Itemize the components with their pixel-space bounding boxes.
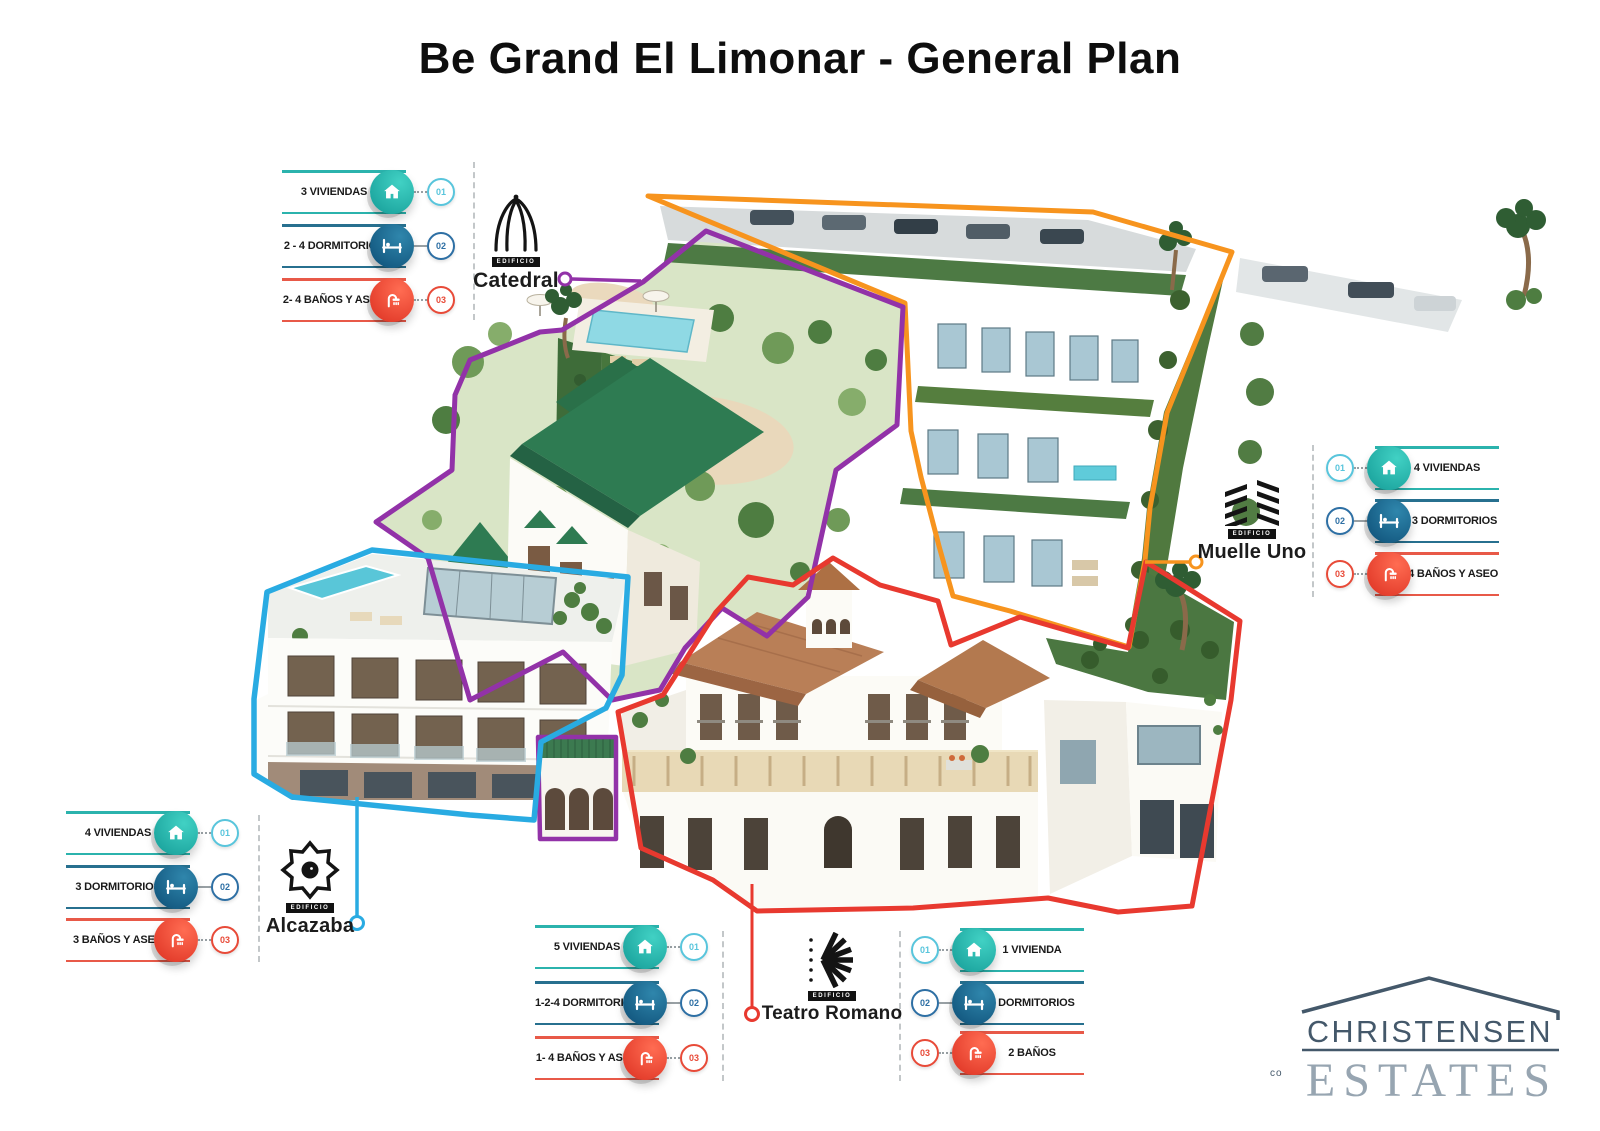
building-name: Catedral [473,269,559,293]
dotted-connector [414,191,427,193]
home-icon [1367,446,1411,490]
step-number: 01 [680,933,708,961]
brand-roof-icon [1302,978,1558,1020]
stat-row: 3 VIVIENDAS 01 [282,170,455,214]
stat-label: 4 VIVIENDAS [1414,462,1480,474]
step-number: 02 [211,873,239,901]
stat-label: 2 DORMITORIOS [989,997,1074,1009]
dotted-connector [667,946,680,948]
dotted-connector [1354,573,1367,575]
step-number: 03 [911,1039,939,1067]
building-name: Alcazaba [266,915,354,938]
slatted-bars-icon [1223,478,1281,526]
home-icon [370,170,414,214]
stat-row: 2 - 4 DORMITORIOS 02 [282,224,455,268]
stat-row: 2- 4 BAÑOS Y ASEO 03 [282,278,455,322]
bed-icon [370,224,414,268]
stat-row: 03 2 BAÑOS [911,1031,1084,1075]
shower-icon [370,278,414,322]
stat-row: 02 2 DORMITORIOS [911,981,1084,1025]
building-type-badge: EDIFICIO [1228,529,1277,539]
stat-row: 03 3- 4 BAÑOS Y ASEO [1326,552,1499,596]
brand-subname: ESTATES [1306,1054,1558,1107]
eight-pointed-star-icon [280,840,340,900]
step-number: 01 [427,178,455,206]
line-connector [667,1002,680,1004]
cathedral-arches-icon [489,192,543,254]
step-number: 03 [680,1044,708,1072]
brand-name: CHRISTENSEN [1307,1015,1553,1049]
dotted-connector [198,832,211,834]
stat-label: 5 VIVIENDAS [554,941,620,953]
dotted-connector [939,1052,952,1054]
stat-row: 5 VIVIENDAS 01 [535,925,708,969]
dotted-connector [667,1057,680,1059]
dotted-connector [414,299,427,301]
radial-fan-icon [807,932,857,988]
divider [1312,445,1314,597]
page-title: Be Grand El Limonar - General Plan [0,34,1600,84]
stat-label: 3 VIVIENDAS [301,186,367,198]
stat-label: 2 - 3 DORMITORIOS [1397,515,1497,527]
building-label-teatro-romano: EDIFICIO Teatro Romano [768,932,896,1025]
building-type-badge: EDIFICIO [286,903,335,913]
step-number: 01 [1326,454,1354,482]
bed-icon [154,865,198,909]
line-connector [414,245,427,247]
step-number: 03 [211,926,239,954]
stat-row: 3 DORMITORIOS 02 [66,865,239,909]
bed-icon [623,981,667,1025]
line-connector [198,886,211,888]
step-number: 02 [1326,507,1354,535]
step-number: 01 [911,936,939,964]
building-label-alcazaba: EDIFICIO Alcazaba [252,840,368,938]
stat-row: 02 2 - 3 DORMITORIOS [1326,499,1499,543]
stat-row: 01 1 VIVIENDA [911,928,1084,972]
brand-prefix: co [1270,1068,1283,1079]
dotted-connector [1354,467,1367,469]
bed-icon [952,981,996,1025]
divider [722,931,724,1081]
stat-label: 3 DORMITORIOS [75,881,160,893]
dotted-connector [939,949,952,951]
building-label-catedral: EDIFICIO Catedral [460,192,572,293]
step-number: 02 [427,232,455,260]
stat-row: 1-2-4 DORMITORIOS 02 [535,981,708,1025]
line-connector [939,1002,952,1004]
stat-label: 4 VIVIENDAS [85,827,151,839]
building-type-badge: EDIFICIO [492,257,541,267]
home-icon [623,925,667,969]
dotted-connector [198,939,211,941]
step-number: 01 [211,819,239,847]
building-type-badge: EDIFICIO [808,991,857,1001]
brand-logo: CHRISTENSEN co ESTATES [1262,966,1568,1115]
stat-row: 3 BAÑOS Y ASEO 03 [66,918,239,962]
step-number: 03 [1326,560,1354,588]
general-plan-page: Be Grand El Limonar - General Plan 3 VIV… [0,0,1600,1131]
home-icon [952,928,996,972]
step-number: 03 [427,286,455,314]
catedral-gallery [540,739,616,838]
stat-label: 3- 4 BAÑOS Y ASEO [1396,568,1498,580]
stat-label: 2 BAÑOS [1008,1047,1056,1059]
building-label-muelle-uno: EDIFICIO Muelle Uno [1194,478,1310,564]
step-number: 02 [911,989,939,1017]
line-connector [1354,520,1367,522]
shower-icon [952,1031,996,1075]
building-name: Muelle Uno [1198,541,1307,564]
stat-row: 01 4 VIVIENDAS [1326,446,1499,490]
stat-label: 1 VIVIENDA [1002,944,1061,956]
home-icon [154,811,198,855]
bed-icon [1367,499,1411,543]
shower-icon [1367,552,1411,596]
stat-row: 1- 4 BAÑOS Y ASEO 03 [535,1036,708,1080]
step-number: 02 [680,989,708,1017]
shower-icon [623,1036,667,1080]
building-name: Teatro Romano [762,1003,903,1025]
stat-label: 3 BAÑOS Y ASEO [73,934,163,946]
stat-row: 4 VIVIENDAS 01 [66,811,239,855]
shower-icon [154,918,198,962]
